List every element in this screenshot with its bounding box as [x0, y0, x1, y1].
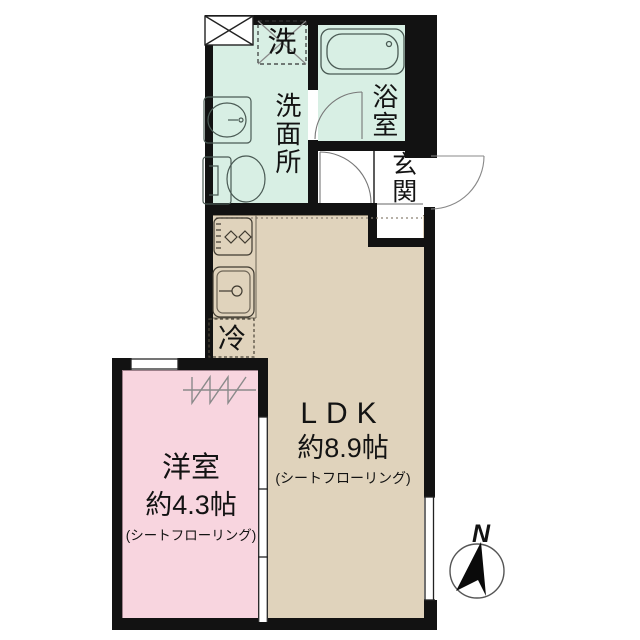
fridge-label: 冷 [210, 323, 254, 355]
washbasin-icon [204, 97, 251, 143]
bathroom-label: 浴室 [368, 83, 398, 139]
ldk-name-label: LDK [263, 397, 423, 432]
entrance-door-swing [431, 156, 484, 209]
window-ldk-right [424, 497, 435, 600]
western-size-label: 約4.3帖 [121, 490, 261, 521]
western-flooring-label: (シートフローリング) [121, 528, 261, 544]
entrance-label: 玄関 [388, 151, 417, 205]
stove-icon [214, 218, 252, 255]
kitchen-sink-icon [213, 267, 254, 317]
compass-icon [450, 542, 504, 598]
folding-door-icon [183, 377, 256, 403]
compass-north-label: N [462, 520, 500, 549]
bathtub-icon [321, 29, 404, 74]
plan-linework [0, 0, 640, 640]
washer-label: 洗 [258, 27, 306, 60]
washroom-door-swing [320, 152, 371, 203]
pipe-shaft-icon [205, 16, 253, 45]
washroom-label: 洗面所 [271, 92, 301, 176]
ldk-flooring-label: (シートフローリング) [263, 470, 423, 486]
western-name-label: 洋室 [121, 452, 261, 485]
floor-plan: 洗 洗面所 浴室 玄関 冷 LDK 約8.9帖 (シートフローリング) 洋室 約… [0, 0, 640, 640]
toilet-icon [203, 156, 265, 204]
window-western-top [131, 358, 178, 370]
ldk-size-label: 約8.9帖 [263, 433, 423, 464]
bathroom-door-swing [315, 92, 362, 139]
